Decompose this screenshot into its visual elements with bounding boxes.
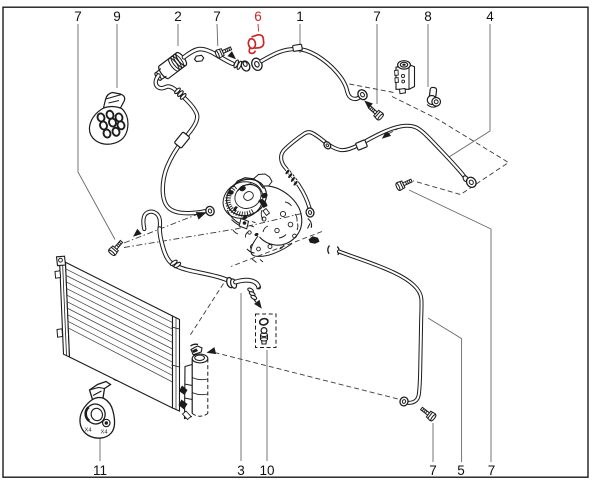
svg-text:7: 7 <box>213 9 221 24</box>
svg-text:X4: X4 <box>101 430 109 436</box>
svg-text:X4: X4 <box>85 428 93 434</box>
svg-text:7: 7 <box>429 463 437 478</box>
svg-text:11: 11 <box>93 463 107 478</box>
svg-text:8: 8 <box>424 9 432 24</box>
svg-text:3: 3 <box>237 463 245 478</box>
svg-text:6: 6 <box>254 9 262 24</box>
svg-text:10: 10 <box>259 463 274 478</box>
svg-text:4: 4 <box>486 9 494 24</box>
svg-text:2: 2 <box>174 9 182 24</box>
svg-text:7: 7 <box>74 9 82 24</box>
svg-text:7: 7 <box>373 9 381 24</box>
svg-text:7: 7 <box>488 463 496 478</box>
svg-text:1: 1 <box>296 9 304 24</box>
svg-text:5: 5 <box>457 463 465 478</box>
svg-text:9: 9 <box>113 9 121 24</box>
